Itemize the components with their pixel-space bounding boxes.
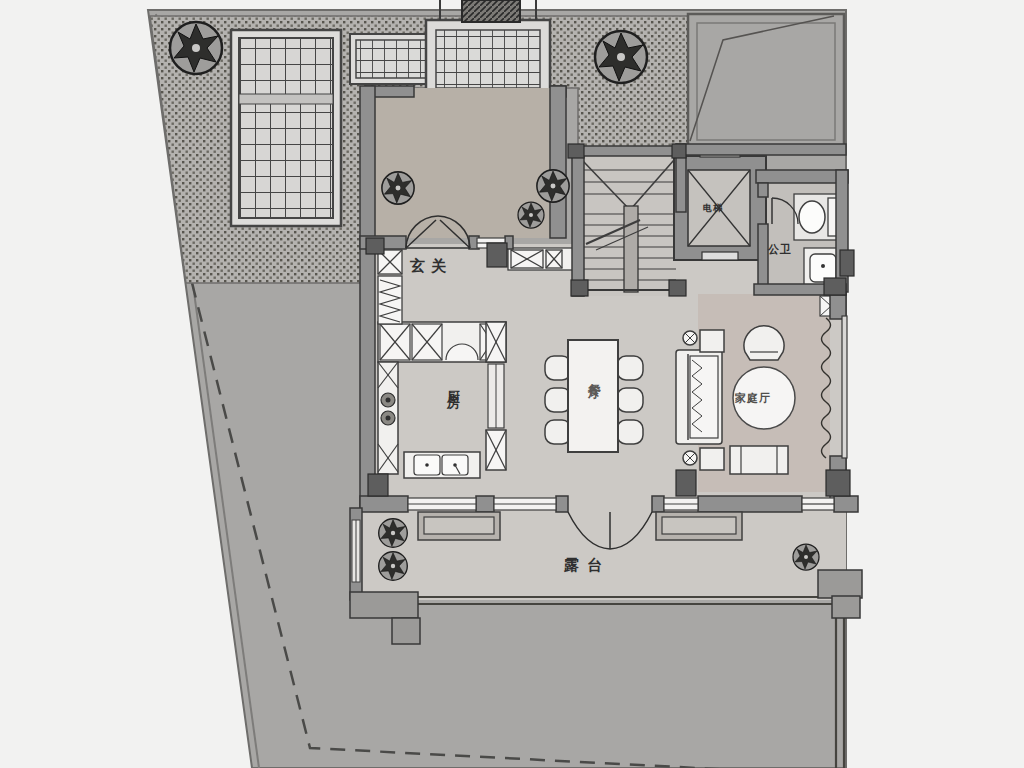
tree-icon <box>379 552 408 581</box>
hallway-cabinet <box>508 248 576 270</box>
tree-icon <box>537 170 569 202</box>
room-label-family-room: 家庭厅 <box>735 391 771 406</box>
pergola-grid <box>231 30 341 226</box>
room-label-dining: 餐厅 <box>585 372 603 380</box>
west-wall <box>360 86 375 510</box>
courtyard <box>688 14 844 148</box>
dining-table <box>568 340 618 452</box>
tree-icon <box>379 519 408 548</box>
toilet-icon <box>799 198 840 236</box>
trellis-panel-left <box>350 34 432 84</box>
sofa <box>676 350 722 444</box>
bench <box>730 446 788 474</box>
canopy-post-box <box>462 0 520 22</box>
room-label-bathroom: 公卫 <box>768 242 792 257</box>
floorplan-page: { "plan": { "title": "residential-floor-… <box>0 0 1024 768</box>
elevator-door <box>702 252 738 260</box>
stair-center-rail <box>624 206 638 292</box>
floorplan-drawing <box>0 0 1024 768</box>
armchair <box>744 326 784 360</box>
room-label-terrace: 露台 <box>564 556 610 575</box>
side-table <box>700 330 724 352</box>
tree-icon <box>793 544 819 570</box>
side-table <box>700 448 724 470</box>
dining-chair <box>617 420 643 444</box>
north-wall-right <box>676 144 846 155</box>
foyer-cabinet <box>378 250 402 324</box>
tree-icon <box>518 202 544 228</box>
room-label-entry: 玄关 <box>410 257 452 276</box>
tree-icon <box>595 31 647 83</box>
room-label-kitchen: 厨房 <box>444 380 462 388</box>
room-label-elevator: 电梯 <box>703 202 723 215</box>
dining-set <box>545 340 643 452</box>
dining-chair <box>617 388 643 412</box>
tree-icon <box>382 172 414 204</box>
tree-icon <box>170 22 222 74</box>
dining-chair <box>617 356 643 380</box>
east-window <box>842 316 847 458</box>
